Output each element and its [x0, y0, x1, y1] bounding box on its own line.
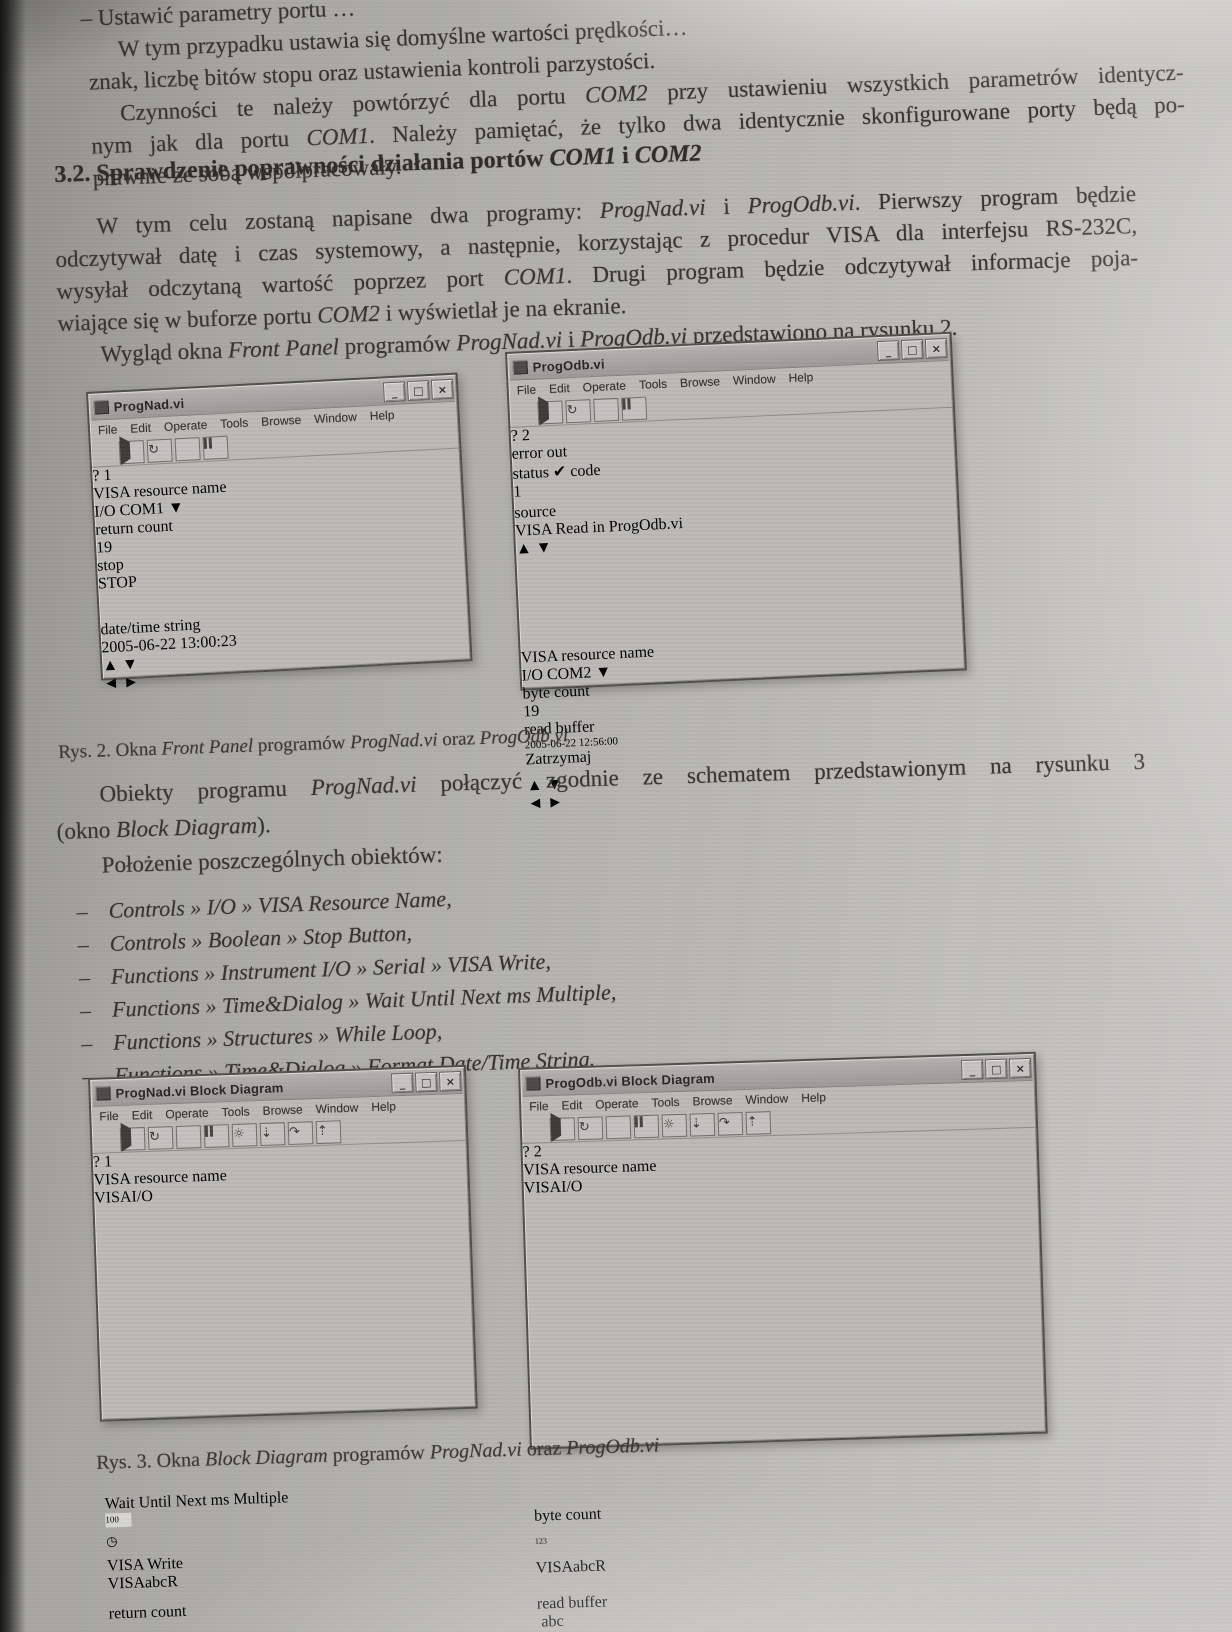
window-prognad-blockdiagram: ProgNad.vi Block Diagram _ □ × File Edit…: [88, 1065, 478, 1422]
run-continuous-icon: ↻: [579, 1119, 590, 1134]
status-label: status: [512, 464, 549, 483]
status-checkbox[interactable]: ✔: [553, 463, 567, 481]
close-button[interactable]: ×: [431, 379, 454, 400]
menu-browse[interactable]: Browse: [680, 374, 721, 390]
run-continuous-icon: ↻: [566, 402, 578, 417]
code-field: 1: [513, 478, 636, 505]
menu-browse[interactable]: Browse: [262, 1103, 302, 1118]
pause-icon: [204, 436, 228, 448]
byte-count-label: byte count: [522, 683, 590, 703]
step-out-icon: ⇡: [317, 1123, 328, 1138]
minimize-button[interactable]: _: [391, 1073, 414, 1094]
highlight-execution-button[interactable]: ☼: [662, 1113, 688, 1137]
source-textarea[interactable]: VISA Read in ProgOdb.vi ▲ ▼: [515, 515, 698, 635]
vi-badge-number: 1: [104, 1153, 113, 1170]
step-into-button[interactable]: ⇣: [260, 1122, 286, 1146]
menu-tools[interactable]: Tools: [639, 377, 668, 392]
list-dash: –: [79, 994, 91, 1027]
window-progodb-frontpanel: ProgOdb.vi _ □ × File Edit Operate Tools…: [505, 332, 967, 691]
byte-count-terminal[interactable]: 123: [534, 1525, 565, 1560]
abort-button[interactable]: [176, 1125, 202, 1149]
menu-operate[interactable]: Operate: [595, 1096, 639, 1111]
maximize-button[interactable]: □: [901, 339, 924, 360]
block-diagram-area: VISA resource name VISAI/O Wait Until Ne…: [93, 1159, 490, 1632]
block-diagram-area: VISA resource name VISAI/O byte count 12…: [523, 1146, 1062, 1632]
labview-vi-icon: [95, 1086, 110, 1101]
vi-icon-badge: 1: [104, 1153, 113, 1170]
menu-file[interactable]: File: [98, 422, 118, 437]
run-button[interactable]: [120, 1127, 146, 1151]
pause-icon: [622, 397, 645, 409]
labview-vi-icon: [93, 400, 109, 415]
menu-file[interactable]: File: [99, 1109, 119, 1124]
code-label: code: [570, 462, 601, 480]
run-continuous-button[interactable]: ↻: [147, 438, 173, 462]
list-dash: –: [78, 961, 90, 994]
stop-button[interactable]: STOP: [98, 571, 188, 622]
vi-icon-badge: 2: [522, 427, 531, 444]
window-progodb-blockdiagram: ProgOdb.vi Block Diagram _ □ × File Edit…: [518, 1052, 1048, 1450]
menu-tools[interactable]: Tools: [651, 1095, 679, 1110]
step-into-button[interactable]: ⇣: [690, 1112, 716, 1136]
vi-icon-badge: 2: [533, 1143, 542, 1160]
run-button[interactable]: [550, 1117, 576, 1141]
run-continuous-button[interactable]: ↻: [148, 1126, 174, 1150]
error-out-label: error out: [511, 443, 567, 463]
run-continuous-icon: ↻: [149, 1129, 160, 1144]
step-into-icon: ⇣: [261, 1125, 272, 1140]
run-button[interactable]: [537, 400, 563, 424]
scanned-page: – Ustawić parametry portu … W tym przypa…: [0, 0, 1232, 1632]
menu-edit[interactable]: Edit: [561, 1098, 582, 1113]
stop-label: stop: [97, 556, 125, 574]
window-controls: _ □ ×: [391, 1071, 462, 1093]
menu-window[interactable]: Window: [745, 1092, 788, 1107]
vi-icon-badge: 1: [103, 467, 112, 484]
labview-vi-icon: [512, 360, 528, 375]
menu-help[interactable]: Help: [371, 1099, 396, 1114]
minimize-button[interactable]: _: [383, 381, 406, 402]
window-title: ProgNad.vi Block Diagram: [115, 1080, 283, 1101]
menu-window[interactable]: Window: [315, 1101, 358, 1116]
visa-resource-value: COM1: [119, 500, 164, 519]
error-out-cluster: status ✔ code 1 source VISA Read in Prog…: [512, 454, 726, 649]
vi-badge-number: 2: [522, 427, 531, 444]
visa-resource-terminal-label: VISA resource name: [523, 1158, 657, 1179]
close-button[interactable]: ×: [925, 338, 948, 359]
step-over-icon: ↷: [289, 1124, 300, 1139]
figure2-caption: Rys. 2. Okna Front Panel programów ProgN…: [58, 725, 569, 764]
scroll-right-icon[interactable]: ►: [123, 674, 140, 692]
read-buffer-terminal-label: read buffer: [537, 1593, 608, 1612]
byte-count-terminal-label: byte count: [534, 1506, 602, 1525]
window-controls: _ □ ×: [383, 379, 454, 403]
minimize-button[interactable]: _: [877, 340, 900, 361]
list-dash: –: [76, 895, 88, 928]
help-button[interactable]: ?: [522, 1144, 530, 1161]
step-out-icon: ⇡: [747, 1114, 758, 1129]
visa-write-label: VISA Write: [107, 1555, 184, 1575]
lightbulb-icon: ☼: [233, 1126, 245, 1141]
window-title: ProgOdb.vi Block Diagram: [545, 1070, 715, 1090]
scroll-left-icon[interactable]: ◄: [103, 675, 120, 693]
vi-badge-number: 1: [103, 467, 112, 484]
visa-resource-terminal[interactable]: VISAI/O: [94, 1189, 125, 1222]
run-icon: [550, 1112, 561, 1141]
pause-button[interactable]: [204, 1124, 230, 1148]
menu-operate[interactable]: Operate: [165, 1106, 209, 1122]
menu-window[interactable]: Window: [733, 372, 776, 388]
while-loop-border: [527, 1282, 918, 1508]
menu-help[interactable]: Help: [801, 1090, 826, 1105]
lightbulb-icon: ☼: [663, 1117, 675, 1132]
minimize-button[interactable]: _: [961, 1059, 984, 1080]
step-out-button[interactable]: ⇡: [316, 1120, 342, 1144]
ms-constant[interactable]: 100: [105, 1513, 131, 1528]
labview-vi-icon: [525, 1076, 540, 1090]
front-panel-area: VISA resource name I/O COM1 ▼ return cou…: [93, 467, 469, 658]
pause-icon: [205, 1125, 228, 1137]
code-value: 1: [513, 483, 522, 500]
scroll-down-icon[interactable]: ▼: [122, 656, 139, 674]
visa-resource-value: COM2: [547, 664, 592, 683]
source-scrollbar[interactable]: ▲ ▼: [516, 539, 552, 558]
menu-file[interactable]: File: [516, 383, 536, 398]
menu-edit[interactable]: Edit: [131, 1108, 152, 1123]
window-title: ProgOdb.vi: [532, 356, 605, 374]
menu-operate[interactable]: Operate: [582, 379, 626, 395]
return-count-field: 19: [96, 535, 183, 557]
help-button[interactable]: ?: [510, 428, 518, 445]
abort-button[interactable]: [593, 397, 619, 421]
junction-dot: [535, 1544, 1049, 1560]
wait-until-next-ms-node[interactable]: ◷: [106, 1527, 133, 1558]
body-paragraph-2: Obiekty programu ProgNad.vi połączyć zgo…: [55, 744, 1148, 884]
wire: [95, 1209, 473, 1334]
run-icon: [538, 396, 549, 425]
io-glyph-icon: I/O: [521, 667, 543, 685]
visa-resource-terminal-label: VISA resource name: [93, 1167, 227, 1189]
vi-badge-number: 2: [533, 1143, 542, 1160]
combo-arrow-icon[interactable]: ▼: [168, 499, 185, 517]
menu-help[interactable]: Help: [369, 408, 394, 423]
menu-help[interactable]: Help: [788, 370, 813, 385]
window-controls: _ □ ×: [877, 338, 948, 361]
abort-button[interactable]: [606, 1115, 632, 1139]
scroll-down-icon[interactable]: ▼: [535, 539, 552, 557]
maximize-button[interactable]: □: [985, 1059, 1008, 1080]
menu-file[interactable]: File: [529, 1099, 549, 1114]
run-icon: [119, 435, 131, 464]
step-over-icon: ↷: [719, 1115, 730, 1130]
step-over-button[interactable]: ↷: [288, 1121, 314, 1145]
run-icon: [121, 1122, 132, 1151]
menu-browse[interactable]: Browse: [692, 1093, 732, 1108]
abort-button[interactable]: [175, 437, 201, 461]
help-button[interactable]: ?: [93, 1154, 101, 1171]
pause-button[interactable]: [621, 396, 647, 420]
run-continuous-button[interactable]: ↻: [565, 399, 591, 423]
return-count-label: return count: [95, 518, 174, 539]
menu-edit[interactable]: Edit: [130, 421, 151, 436]
pause-icon: [635, 1115, 658, 1127]
maximize-button[interactable]: □: [415, 1072, 438, 1093]
io-glyph-icon: I/O: [94, 503, 116, 521]
wire: [525, 1198, 1041, 1294]
read-buffer-terminal[interactable]: abc: [537, 1613, 572, 1632]
window-controls: _ □ ×: [961, 1058, 1032, 1080]
window-title: ProgNad.vi: [113, 395, 184, 414]
pause-button[interactable]: [634, 1114, 660, 1138]
pause-button[interactable]: [202, 435, 228, 459]
list-dash: –: [81, 1027, 93, 1060]
return-count-terminal-label: return count: [108, 1603, 186, 1623]
run-continuous-button[interactable]: ↻: [578, 1116, 604, 1140]
menu-window[interactable]: Window: [314, 410, 357, 426]
step-into-icon: ⇣: [691, 1116, 702, 1131]
scroll-up-icon[interactable]: ▲: [102, 657, 119, 675]
menu-operate[interactable]: Operate: [164, 418, 208, 434]
run-continuous-icon: ↻: [148, 442, 160, 458]
scroll-up-icon[interactable]: ▲: [516, 540, 533, 558]
byte-count-value: 19: [523, 703, 540, 721]
visa-write-node[interactable]: VISAabcR: [107, 1575, 138, 1606]
list-dash: –: [77, 928, 89, 961]
menu-browse[interactable]: Browse: [261, 413, 302, 429]
visa-resource-terminal[interactable]: VISAI/O: [524, 1179, 555, 1214]
front-panel-area: error out status ✔ code 1 source VISA Re…: [511, 426, 969, 778]
return-count-terminal[interactable]: 123: [109, 1623, 140, 1632]
close-button[interactable]: ×: [439, 1071, 462, 1092]
maximize-button[interactable]: □: [407, 380, 430, 401]
run-button[interactable]: [119, 440, 145, 464]
visa-read-node[interactable]: VISAabcR: [535, 1559, 570, 1596]
window-prognad-frontpanel: ProgNad.vi _ □ × File Edit Operate Tools…: [86, 373, 473, 681]
combo-arrow-icon[interactable]: ▼: [595, 664, 612, 682]
menu-tools[interactable]: Tools: [220, 416, 249, 431]
close-button[interactable]: ×: [1009, 1058, 1032, 1079]
menu-tools[interactable]: Tools: [221, 1104, 249, 1119]
object-location-list: –Controls » I/O » VISA Resource Name, –C…: [76, 876, 619, 1093]
step-over-button[interactable]: ↷: [717, 1111, 743, 1135]
help-button[interactable]: ?: [92, 467, 100, 484]
step-out-button[interactable]: ⇡: [745, 1111, 771, 1135]
source-label: source: [514, 503, 556, 522]
highlight-execution-button[interactable]: ☼: [232, 1123, 258, 1147]
return-count-value: 19: [96, 539, 113, 557]
body-paragraph: W tym celu zostaną napisane dwa programy…: [54, 178, 1140, 372]
menu-edit[interactable]: Edit: [549, 381, 570, 396]
